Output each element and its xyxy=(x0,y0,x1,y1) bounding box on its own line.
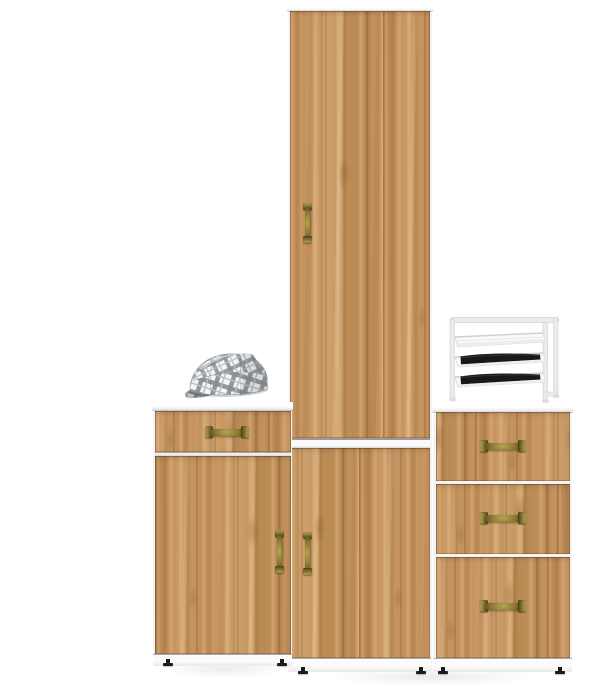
left-cabinet-door xyxy=(155,456,291,654)
tall-cabinet-base xyxy=(289,658,431,672)
wire-rack xyxy=(447,316,562,403)
cabinet-foot xyxy=(163,659,173,666)
drawer-handle xyxy=(480,440,526,452)
handle-bar xyxy=(210,429,244,436)
left-cabinet-base xyxy=(153,654,292,666)
cabinet-foot xyxy=(555,667,565,674)
drawer-handle xyxy=(480,512,526,524)
tall-cabinet-top xyxy=(287,4,433,11)
cap-right-shade xyxy=(240,355,268,396)
rack-foot xyxy=(450,398,456,401)
handle-cap xyxy=(241,426,249,438)
lower-door-handle xyxy=(303,532,312,575)
rack-foot xyxy=(543,400,549,403)
plaid-cap xyxy=(183,347,275,405)
right-chest-base xyxy=(434,658,572,672)
handle-cap xyxy=(518,512,526,524)
handle-cap xyxy=(518,440,526,452)
rack-foot xyxy=(553,395,559,398)
plaid-cap-graphic xyxy=(183,347,275,405)
rack-top-rail xyxy=(450,318,559,323)
rack-right-back-post xyxy=(554,318,559,396)
handle-cap xyxy=(518,600,526,612)
left-door-handle xyxy=(275,530,284,573)
drawer-handle xyxy=(205,426,249,438)
handle-bar xyxy=(485,603,521,610)
handle-cap xyxy=(303,236,312,243)
handle-bar xyxy=(485,515,521,522)
rack-left-post xyxy=(450,319,455,399)
cabinet-foot xyxy=(438,667,448,674)
cabinet-foot xyxy=(298,667,308,674)
drawer-handle xyxy=(480,600,526,612)
product-photo xyxy=(0,0,609,700)
handle-bar xyxy=(277,534,282,569)
wire-rack-graphic xyxy=(447,316,562,403)
tall-cabinet-mid-band xyxy=(290,438,430,448)
handle-cap xyxy=(275,566,284,573)
handle-bar xyxy=(305,536,310,571)
cabinet-foot xyxy=(416,667,426,674)
handle-bar xyxy=(485,443,521,450)
upper-door-handle xyxy=(303,203,312,243)
cabinet-foot xyxy=(277,659,287,666)
handle-cap xyxy=(303,568,312,575)
handle-bar xyxy=(305,207,310,239)
